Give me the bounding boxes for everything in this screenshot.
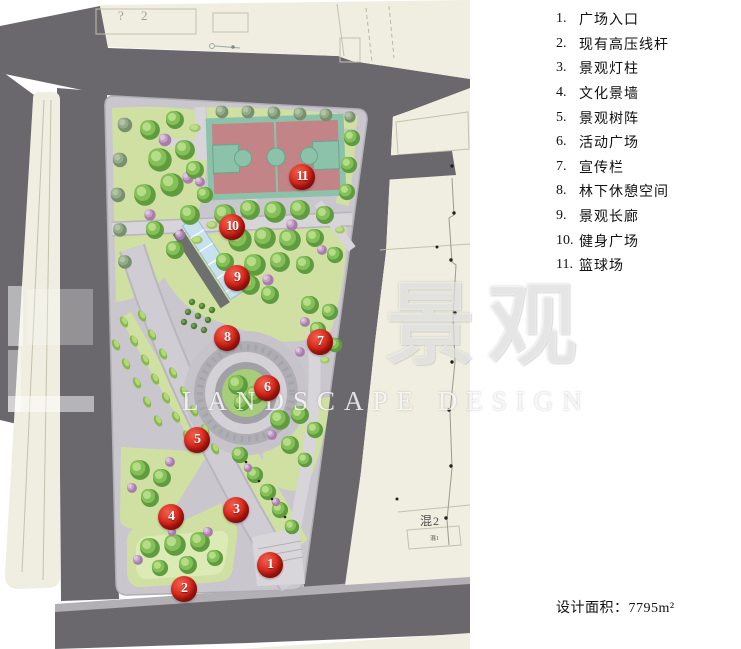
legend-label: 活动广场 xyxy=(579,132,639,152)
legend: 1.广场入口 2.现有高压线杆 3.景观灯柱 4.文化景墙 5.景观树阵 6.活… xyxy=(556,7,669,278)
legend-label: 宣传栏 xyxy=(579,157,624,177)
design-area-label: 设计面积： xyxy=(556,601,629,616)
site-plan-page: ? 2 混2 混1 景观 LANDSCAPE DESIGN 1 2 3 4 5 … xyxy=(0,0,741,649)
legend-label: 景观灯柱 xyxy=(579,58,639,78)
legend-item-5: 5.景观树阵 xyxy=(556,105,669,130)
block-label-top: ? 2 xyxy=(118,8,155,24)
legend-label: 文化景墙 xyxy=(579,83,639,103)
legend-number: 4. xyxy=(556,85,579,101)
legend-item-1: 1.广场入口 xyxy=(556,7,669,32)
legend-item-10: 10.健身广场 xyxy=(556,228,669,253)
map-marker-1: 1 xyxy=(257,552,283,578)
legend-number: 9. xyxy=(556,208,579,224)
legend-number: 7. xyxy=(556,159,579,175)
design-area-text: 设计面积：7795m² xyxy=(556,597,675,617)
legend-number: 5. xyxy=(556,110,579,126)
legend-label: 林下休憩空间 xyxy=(579,181,669,201)
legend-item-2: 2.现有高压线杆 xyxy=(556,32,669,57)
legend-item-9: 9.景观长廊 xyxy=(556,204,669,229)
legend-item-4: 4.文化景墙 xyxy=(556,81,669,106)
legend-item-11: 11.篮球场 xyxy=(556,253,669,278)
block-label-right: 混2 xyxy=(420,512,440,529)
legend-number: 3. xyxy=(556,60,579,76)
map-marker-6: 6 xyxy=(254,375,280,401)
map-marker-9: 9 xyxy=(224,265,250,291)
map-marker-7: 7 xyxy=(307,329,333,355)
map-marker-11: 11 xyxy=(289,164,315,190)
legend-label: 现有高压线杆 xyxy=(579,34,669,54)
map-marker-8: 8 xyxy=(214,325,240,351)
legend-number: 10. xyxy=(556,233,579,249)
legend-item-8: 8.林下休憩空间 xyxy=(556,179,669,204)
map-marker-2: 2 xyxy=(171,576,197,602)
legend-number: 6. xyxy=(556,134,579,150)
legend-label: 篮球场 xyxy=(579,255,624,275)
legend-item-7: 7.宣传栏 xyxy=(556,155,669,180)
map-marker-10: 10 xyxy=(219,214,245,240)
legend-label: 景观树阵 xyxy=(579,108,639,128)
block-label-right-sub: 混1 xyxy=(430,533,439,542)
map-marker-3: 3 xyxy=(223,497,249,523)
legend-number: 8. xyxy=(556,183,579,199)
basketball-court xyxy=(206,114,347,201)
legend-number: 2. xyxy=(556,36,579,52)
design-area-value: 7795m² xyxy=(629,601,675,616)
legend-number: 1. xyxy=(556,11,579,27)
map-marker-5: 5 xyxy=(184,427,210,453)
legend-label: 健身广场 xyxy=(579,231,639,251)
legend-item-3: 3.景观灯柱 xyxy=(556,56,669,81)
legend-label: 广场入口 xyxy=(579,9,639,29)
legend-item-6: 6.活动广场 xyxy=(556,130,669,155)
legend-label: 景观长廊 xyxy=(579,206,639,226)
legend-number: 11. xyxy=(556,257,579,273)
map-marker-4: 4 xyxy=(158,504,184,530)
